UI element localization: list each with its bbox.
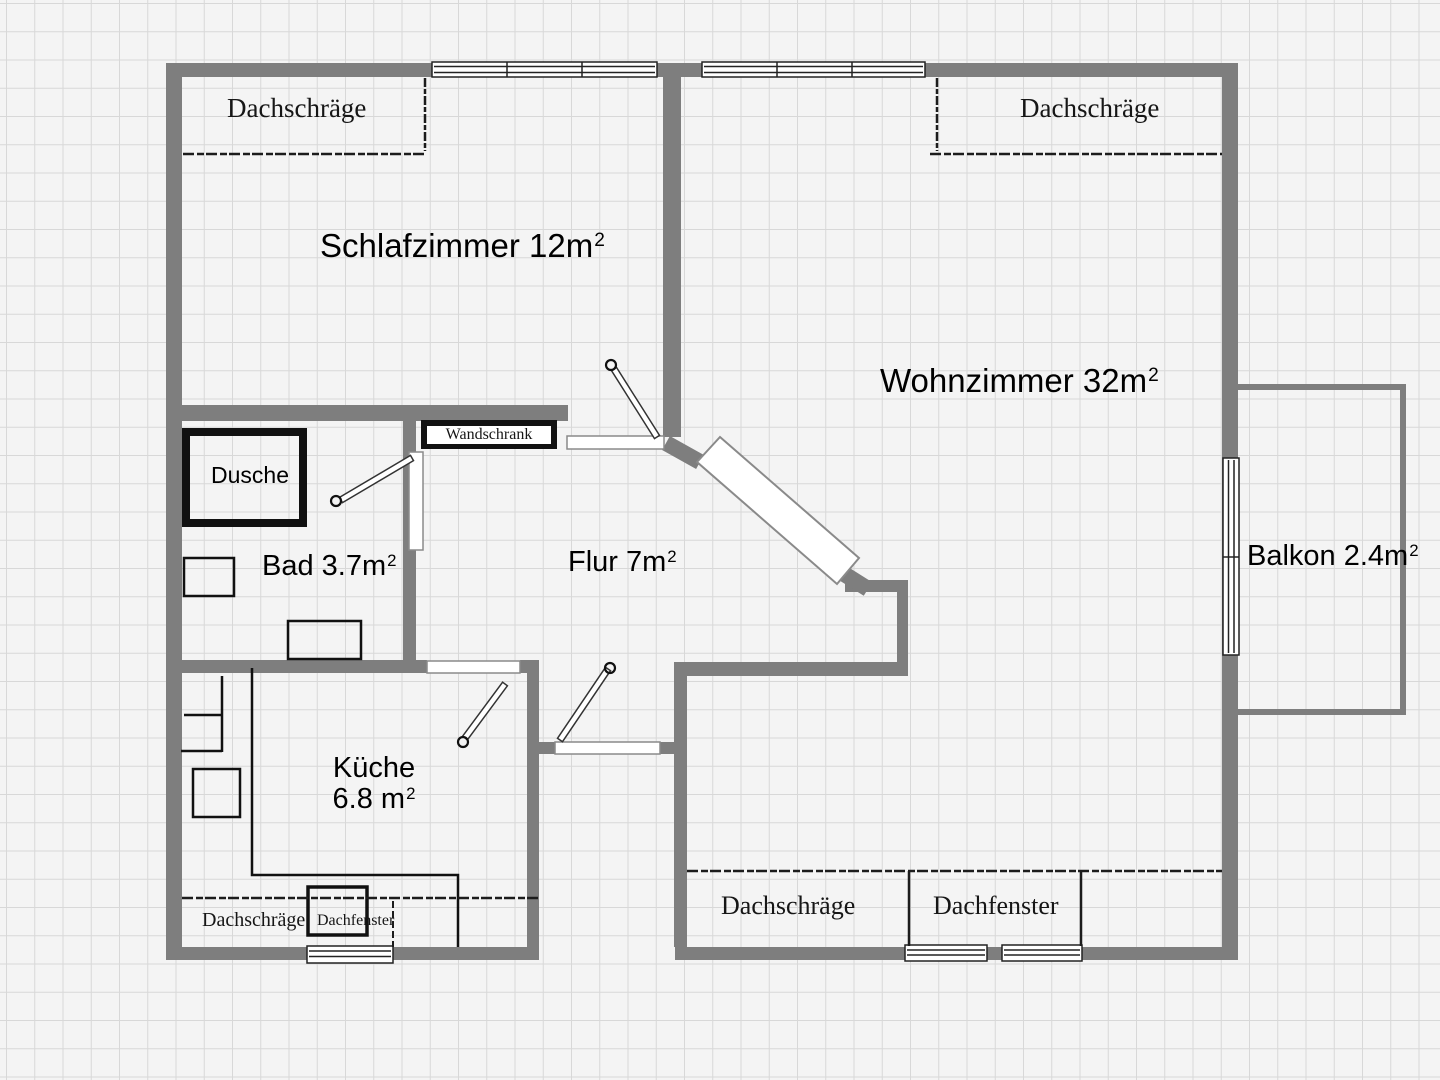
door-leaf-schlafzimmer [567,436,664,449]
roof-window-mid-b [1002,945,1082,961]
wall-entrance-a [527,742,555,754]
room-label-kueche-line1: Küche [299,753,449,784]
door-swing-hook-schlafzimmer [606,360,616,370]
room-label-kueche-name: Küche [333,752,415,784]
door-leaf-kueche [427,661,520,673]
room-label-balkon: Balkon 2.4m2 [1247,542,1419,571]
annotation-dachschraege-top-left: Dachschräge [227,95,366,122]
roof-window-kueche [307,946,393,963]
annotation-dachschraege-bottom-mid: Dachschräge [721,893,855,919]
wall-closet-label: Wandschrank [427,425,551,444]
floor-plan-canvas: Schlafzimmer 12m2 Wohnzimmer 32m2 Bad 3.… [0,0,1440,1080]
door-swing-kueche [463,682,508,740]
annotation-text: Dachschräge [227,93,366,123]
wall-closet-label-text: Wandschrank [446,427,533,443]
room-label-wohnzimmer-sup: 2 [1148,365,1159,386]
stove [193,769,240,817]
doors [409,436,859,754]
room-label-flur-sup: 2 [667,547,676,566]
room-label-flur: Flur 7m2 [568,548,677,577]
wall-bottom-mid-left [674,662,687,947]
wall-bottom-mid-top [674,662,908,676]
room-label-schlafzimmer-text: Schlafzimmer 12m [320,227,593,264]
room-label-flur-text: Flur 7m [568,546,666,578]
door-swing-hook-bad [331,496,341,506]
room-label-bad-sup: 2 [387,551,396,570]
annotation-text: Dachfenster [933,891,1059,920]
outer-walls [166,63,1238,960]
room-label-schlafzimmer: Schlafzimmer 12m2 [320,229,605,262]
toilet [288,621,361,659]
balcony-door-window [1223,458,1239,655]
bathroom-sink [184,558,234,596]
wall-schlafzimmer-bad [182,405,568,421]
annotation-text: Dachschräge [1020,93,1159,123]
door-swing-schlafzimmer [612,367,660,438]
room-label-kueche-area: 6.8 m [333,783,406,815]
balcony-wall-top [1238,384,1406,390]
door-leaf-wohnzimmer-diagonal [697,437,859,584]
door-leaf-entrance [555,742,660,754]
annotation-dachschraege-bottom-left: Dachschräge [202,910,305,930]
room-label-kueche: Küche 6.8 m2 [299,753,449,818]
room-label-dusche-text: Dusche [211,462,289,488]
window-schlafzimmer [432,62,657,77]
window-wohnzimmer [702,62,925,77]
door-swing-entrance [558,667,611,741]
annotation-text: Dachschräge [202,909,305,931]
balcony-wall-bottom [1238,709,1406,715]
room-label-bad-text: Bad 3.7m [262,550,386,582]
annotation-dachfenster-bottom-mid: Dachfenster [933,893,1059,919]
room-label-balkon-text: Balkon 2.4m [1247,540,1408,572]
room-label-bad: Bad 3.7m2 [262,552,397,581]
room-label-kueche-line2: 6.8 m2 [299,784,449,818]
room-label-wohnzimmer: Wohnzimmer 32m2 [880,364,1159,397]
wall-wedge-door-top [666,443,700,462]
wall-step-vertical [897,580,908,666]
room-label-dusche: Dusche [211,464,289,487]
annotation-text: Dachfenster [317,912,394,929]
door-swing-bad [340,455,414,502]
room-label-schlafzimmer-sup: 2 [594,230,605,251]
annotation-dachschraege-top-right: Dachschräge [1020,95,1159,122]
wall-schlafzimmer-wohnzimmer [663,77,681,437]
wall-kueche-right [527,660,539,947]
door-swing-hook-kueche [458,737,468,747]
room-label-wohnzimmer-text: Wohnzimmer 32m [880,362,1147,399]
wall-left [166,63,182,960]
room-label-balkon-sup: 2 [1409,541,1418,560]
roof-window-mid-a [905,945,987,961]
annotation-text: Dachschräge [721,891,855,920]
room-label-kueche-sup: 2 [406,784,415,803]
wall-bad-kueche-a [182,660,427,673]
annotation-dachfenster-bottom-left: Dachfenster [317,913,394,929]
door-leaf-bad [409,452,423,550]
